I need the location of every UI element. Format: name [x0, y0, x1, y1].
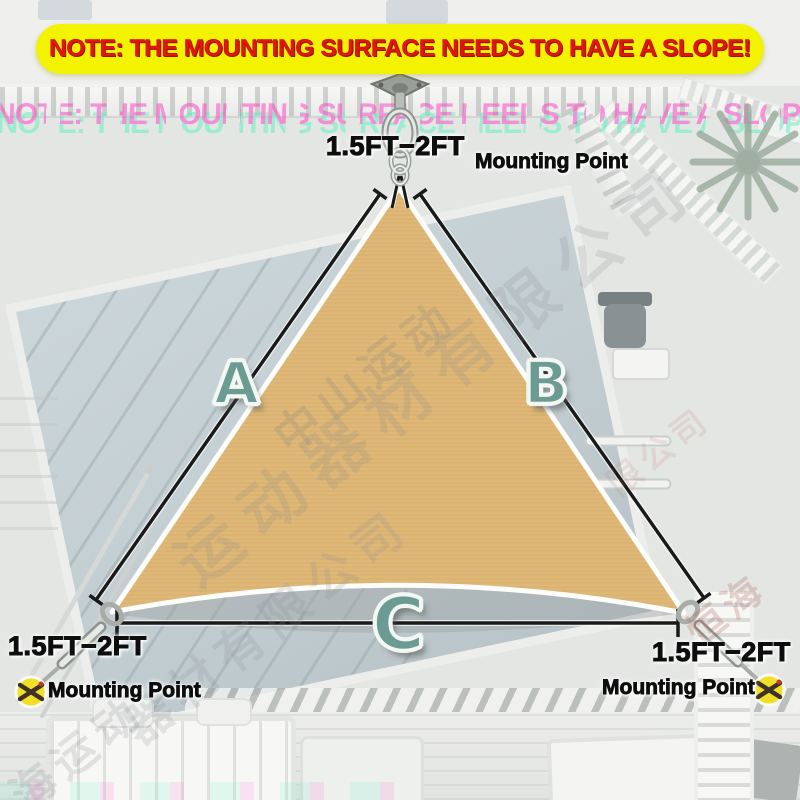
shade-sail	[112, 188, 684, 613]
bottom-left-mounting-point-label: Mounting Point	[48, 680, 201, 701]
bottom-right-distance-label: 1.5FT−2FT	[652, 639, 791, 666]
palm-tree	[693, 107, 800, 217]
note-banner: NOTE: THE MOUNTING SURFACE NEEDS TO HAVE…	[36, 24, 764, 74]
side-c-label: C	[372, 588, 425, 660]
note-banner-text: NOTE: THE MOUNTING SURFACE NEEDS TO HAVE…	[49, 35, 751, 63]
product-diagram: NOTE: THE MOUNTING SURFACE NEEDS TO HAVE…	[0, 0, 800, 800]
side-a-label: A	[214, 354, 259, 412]
ceiling-anchor-icon	[372, 74, 428, 184]
bottom-right-mounting-point-label: Mounting Point	[602, 677, 755, 698]
bottom-left-distance-label: 1.5FT−2FT	[8, 633, 147, 660]
top-distance-label: 1.5FT−2FT	[326, 133, 465, 160]
mounting-screws-icon-left	[16, 677, 46, 707]
mounting-screws-icon-right	[754, 675, 784, 705]
top-mounting-point-label: Mounting Point	[475, 151, 628, 172]
side-b-label: B	[524, 354, 568, 412]
